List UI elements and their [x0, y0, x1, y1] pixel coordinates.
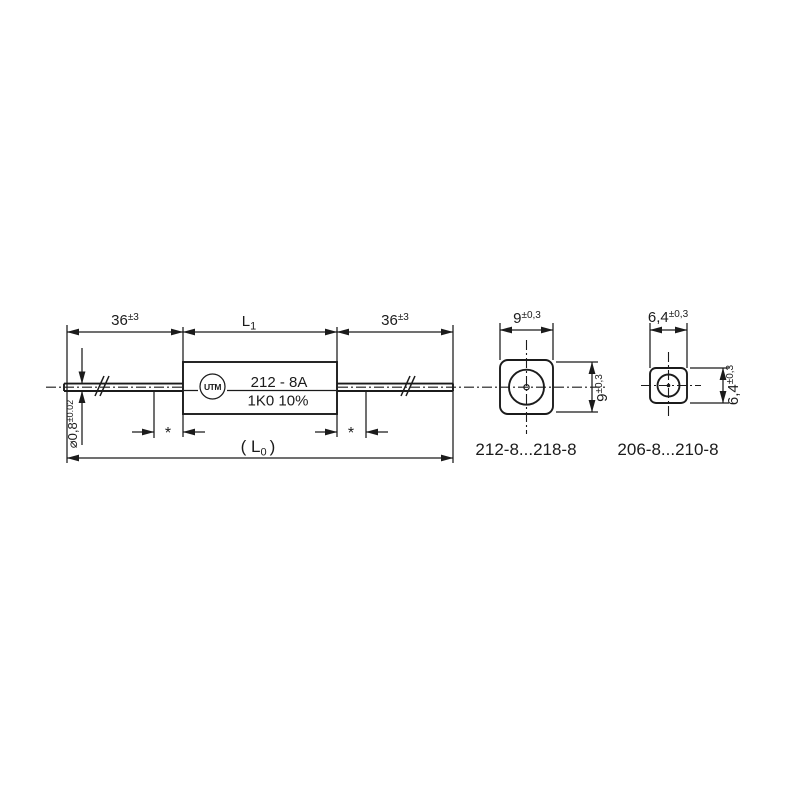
manufacturer-logo-text: UTM — [204, 382, 221, 392]
lead-break-mark-right — [401, 376, 415, 396]
end-view-large-width-label: 9±0,3 — [513, 310, 541, 327]
dim-label-wire-diameter: ⌀0,8±0.02 — [65, 400, 80, 448]
end-view-small-wire — [667, 384, 671, 388]
technical-drawing-page: UTM 212 - 8A 1K0 10% * * 36±3 L1 36±3 ( … — [0, 0, 800, 800]
body-marking-value: 1K0 10% — [248, 393, 309, 410]
end-view-small-height-label: 6,4±0,3 — [725, 364, 742, 405]
dim-label-lead-left: 36±3 — [111, 312, 139, 329]
asterisk-label-right: * — [348, 425, 354, 442]
asterisk-label-left: * — [165, 425, 171, 442]
end-view-large-height-label: 9±0,3 — [594, 374, 611, 402]
dim-label-overall-length: ( L0) — [241, 437, 276, 459]
end-view-large-caption: 212-8...218-8 — [475, 440, 576, 459]
body-marking-type: 212 - 8A — [251, 374, 308, 391]
resistor-dimension-diagram: UTM 212 - 8A 1K0 10% * * 36±3 L1 36±3 ( … — [0, 0, 800, 800]
end-view-small-caption: 206-8...210-8 — [617, 440, 718, 459]
dim-label-body-length: L1 — [242, 313, 256, 333]
dim-label-lead-right: 36±3 — [381, 312, 409, 329]
end-view-small-width-label: 6,4±0,3 — [648, 309, 689, 326]
lead-break-mark-left — [95, 376, 109, 396]
